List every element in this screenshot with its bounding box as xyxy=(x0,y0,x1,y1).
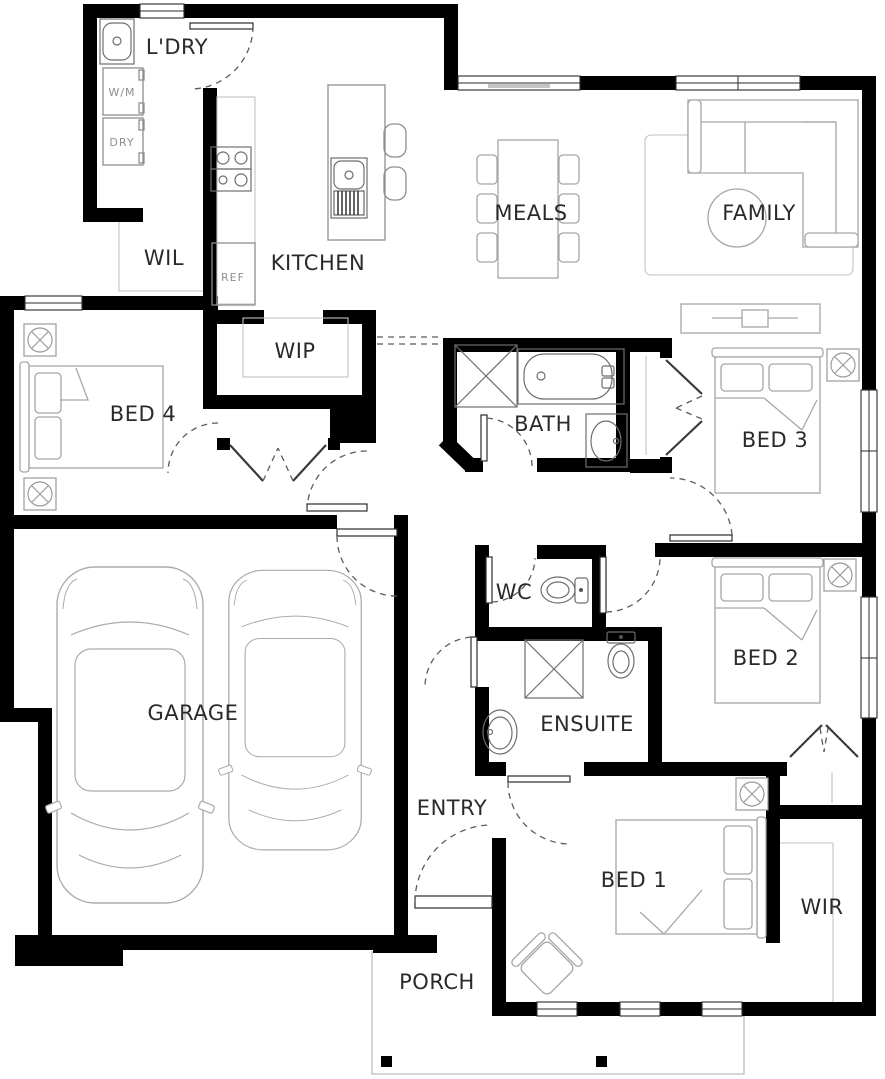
label-wil: WIL xyxy=(144,246,184,270)
label-garage: GARAGE xyxy=(148,701,239,725)
wip-opening-dashes xyxy=(377,337,443,344)
bed3-bed xyxy=(712,348,823,493)
bath-shower xyxy=(455,345,517,407)
label-wip: WIP xyxy=(274,339,315,363)
downlight-icon xyxy=(24,478,56,510)
car-right xyxy=(218,570,372,850)
bed3-robe-bifold-doors xyxy=(666,360,702,455)
label-laundry: L'DRY xyxy=(146,35,208,59)
label-meals: MEALS xyxy=(494,201,567,225)
laundry-trough xyxy=(100,19,134,64)
linen-bifold-doors xyxy=(230,445,326,481)
label-dryer: DRY xyxy=(109,136,134,149)
front-door xyxy=(415,825,492,908)
window-meals xyxy=(458,76,580,90)
window-bed2 xyxy=(861,597,877,718)
label-entry: ENTRY xyxy=(417,796,487,820)
window-laundry xyxy=(140,4,184,18)
label-wir: WIR xyxy=(800,895,843,919)
bed1-door xyxy=(508,776,570,844)
ensuite-basin xyxy=(483,710,517,754)
downlight-icon xyxy=(736,778,768,810)
bathtub xyxy=(518,349,624,404)
label-bath: BATH xyxy=(514,412,572,436)
bar-stool xyxy=(384,167,406,200)
label-bed1: BED 1 xyxy=(601,868,667,892)
label-washing-machine: W/M xyxy=(108,86,135,99)
window-bed4 xyxy=(25,296,82,310)
label-wc: WC xyxy=(496,580,532,604)
bed2-door xyxy=(600,557,660,613)
ensuite-door xyxy=(425,637,477,687)
label-bed2: BED 2 xyxy=(733,646,799,670)
bed1-armchair xyxy=(510,926,584,1000)
ensuite-shower xyxy=(525,640,583,698)
floor-plan-canvas: L'DRY WIL KITCHEN WIP MEALS FAMILY BED 4… xyxy=(0,0,885,1079)
window-family xyxy=(676,76,800,90)
porch-post xyxy=(381,1056,392,1067)
car-left xyxy=(45,567,215,903)
downlight-icon xyxy=(824,559,856,591)
label-porch: PORCH xyxy=(399,970,475,994)
label-bed3: BED 3 xyxy=(742,428,808,452)
label-ensuite: ENSUITE xyxy=(540,712,633,736)
label-kitchen: KITCHEN xyxy=(271,251,366,275)
tv-cabinet xyxy=(681,304,820,333)
porch-post xyxy=(596,1056,607,1067)
window-bed1-a xyxy=(537,1002,577,1016)
bed2-bed xyxy=(712,558,823,703)
bed2-robe-bifold-doors xyxy=(790,725,858,757)
label-family: FAMILY xyxy=(722,201,796,225)
wc-toilet xyxy=(541,577,588,603)
label-fridge: REF xyxy=(221,271,245,284)
window-bed3 xyxy=(861,390,877,512)
downlight-icon xyxy=(827,349,859,381)
hall-door xyxy=(307,451,367,511)
island-sink xyxy=(331,158,367,218)
window-bed1-b xyxy=(620,1002,660,1016)
downlight-icon xyxy=(24,324,56,356)
bed4-door xyxy=(168,423,218,473)
bar-stool xyxy=(384,124,406,157)
label-bed4: BED 4 xyxy=(110,402,176,426)
window-bed1-c xyxy=(702,1002,742,1016)
floor-plan: L'DRY WIL KITCHEN WIP MEALS FAMILY BED 4… xyxy=(0,0,885,1079)
